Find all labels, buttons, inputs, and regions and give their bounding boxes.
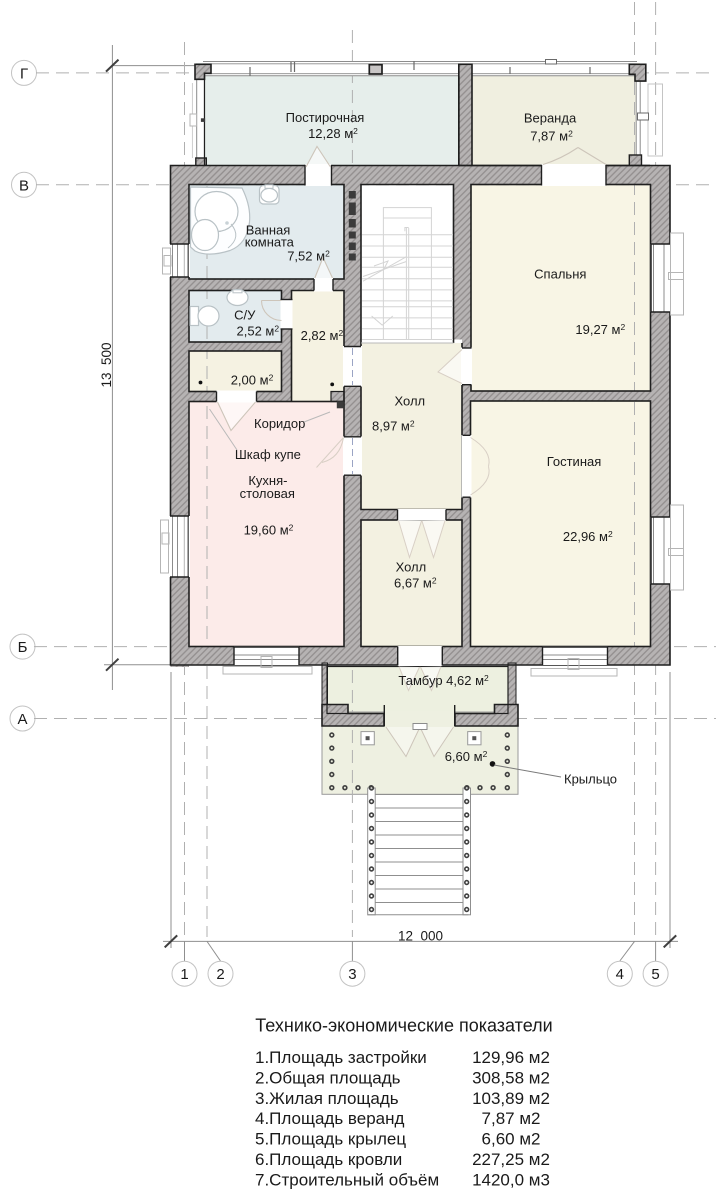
svg-text:1.Площадь застройки: 1.Площадь застройки [255,1048,427,1067]
svg-text:13 500: 13 500 [99,342,114,387]
svg-text:Б: Б [18,639,28,656]
svg-text:Г: Г [20,65,28,82]
svg-text:2,00 м2: 2,00 м2 [231,373,274,388]
svg-text:227,25 м2: 227,25 м2 [472,1150,550,1169]
svg-text:4.Площадь веранд: 4.Площадь веранд [255,1109,404,1128]
svg-text:103,89 м2: 103,89 м2 [472,1089,550,1108]
svg-text:3.Жилая площадь: 3.Жилая площадь [255,1089,399,1108]
svg-text:А: А [17,711,27,728]
svg-text:129,96 м2: 129,96 м2 [472,1048,550,1067]
svg-text:8,97 м2: 8,97 м2 [372,418,415,433]
svg-text:4: 4 [616,966,624,983]
svg-text:7,52 м2: 7,52 м2 [287,248,330,263]
svg-text:2,82 м2: 2,82 м2 [301,328,344,343]
svg-text:Холл: Холл [396,559,427,574]
svg-text:Веранда: Веранда [524,111,577,126]
svg-text:1420,0 м3: 1420,0 м3 [472,1170,550,1189]
svg-text:7,87 м2: 7,87 м2 [530,129,573,144]
svg-text:Спальня: Спальня [534,266,586,281]
svg-text:столовая: столовая [240,486,295,501]
svg-text:3: 3 [348,966,356,983]
svg-text:Крыльцо: Крыльцо [564,771,617,786]
svg-text:6.Площадь кровли: 6.Площадь кровли [255,1150,402,1169]
svg-text:Тамбур 4,62 м2: Тамбур 4,62 м2 [398,673,489,688]
svg-text:С/У: С/У [234,308,256,323]
svg-text:5: 5 [651,966,659,983]
svg-text:комната: комната [245,235,295,250]
svg-text:Постирочная: Постирочная [286,110,365,125]
svg-text:308,58 м2: 308,58 м2 [472,1068,550,1087]
svg-text:6,67 м2: 6,67 м2 [394,576,437,591]
svg-text:19,60 м2: 19,60 м2 [244,523,294,538]
svg-text:19,27 м2: 19,27 м2 [575,322,625,337]
svg-text:В: В [19,177,29,194]
svg-text:Холл: Холл [394,394,425,409]
svg-text:Технико-экономические показате: Технико-экономические показатели [255,1016,552,1036]
svg-text:2.Общая площадь: 2.Общая площадь [255,1068,401,1087]
svg-text:12 000: 12 000 [398,929,443,944]
svg-text:Гостиная: Гостиная [547,454,602,469]
svg-text:7,87 м2: 7,87 м2 [482,1109,541,1128]
svg-text:12,28 м2: 12,28 м2 [308,126,358,141]
svg-text:Коридор: Коридор [254,416,305,431]
svg-text:22,96 м2: 22,96 м2 [563,529,613,544]
svg-text:6,60 м2: 6,60 м2 [482,1130,541,1149]
svg-text:6,60 м2: 6,60 м2 [445,749,488,764]
svg-text:2: 2 [216,966,224,983]
svg-text:2,52 м2: 2,52 м2 [237,324,280,339]
svg-text:7.Строительный объём: 7.Строительный объём [255,1170,439,1189]
svg-text:5.Площадь крылец: 5.Площадь крылец [255,1130,406,1149]
svg-text:Шкаф купе: Шкаф купе [235,447,301,462]
svg-text:1: 1 [180,966,188,983]
